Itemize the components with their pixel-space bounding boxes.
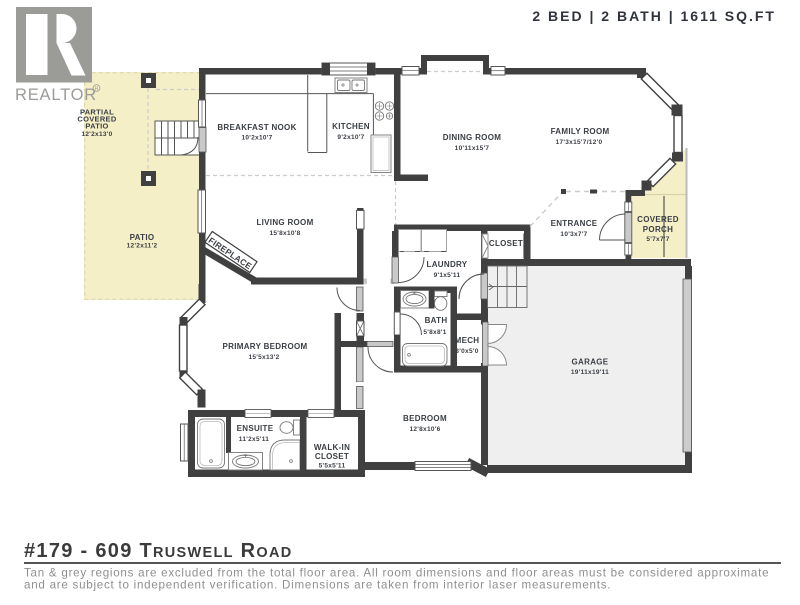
svg-text:BATH: BATH bbox=[425, 316, 448, 325]
svg-text:COVERED: COVERED bbox=[637, 215, 679, 224]
svg-text:REALTOR: REALTOR bbox=[15, 86, 97, 104]
svg-text:12'8x10'6: 12'8x10'6 bbox=[409, 426, 440, 433]
svg-text:9'1x5'11: 9'1x5'11 bbox=[434, 272, 461, 279]
svg-text:10'2x10'7: 10'2x10'7 bbox=[241, 135, 272, 142]
svg-text:GARAGE: GARAGE bbox=[572, 358, 609, 367]
svg-text:ENTRANCE: ENTRANCE bbox=[551, 219, 598, 228]
svg-text:5'5x5'11: 5'5x5'11 bbox=[319, 463, 346, 470]
svg-text:11'2x5'11: 11'2x5'11 bbox=[239, 436, 269, 443]
svg-text:CLOSET: CLOSET bbox=[489, 239, 523, 248]
svg-text:10'3x7'7: 10'3x7'7 bbox=[560, 231, 587, 238]
svg-text:17'3x15'7/12'0: 17'3x15'7/12'0 bbox=[556, 139, 603, 146]
svg-text:5'7x7'7: 5'7x7'7 bbox=[646, 236, 669, 243]
svg-text:WALK-IN: WALK-IN bbox=[314, 443, 350, 452]
svg-text:10'11x15'7: 10'11x15'7 bbox=[455, 145, 490, 152]
svg-text:19'11x19'11: 19'11x19'11 bbox=[571, 369, 609, 376]
svg-text:5'8x8'1: 5'8x8'1 bbox=[423, 329, 446, 336]
svg-text:BEDROOM: BEDROOM bbox=[403, 414, 447, 423]
svg-text:PATIO: PATIO bbox=[85, 122, 108, 131]
svg-text:MECH: MECH bbox=[455, 336, 480, 345]
svg-text:15'8x10'8: 15'8x10'8 bbox=[269, 230, 300, 237]
svg-text:R: R bbox=[95, 86, 99, 92]
svg-text:15'5x13'2: 15'5x13'2 bbox=[248, 354, 279, 361]
svg-text:12'2x13'0: 12'2x13'0 bbox=[81, 131, 112, 138]
svg-text:LAUNDRY: LAUNDRY bbox=[427, 260, 468, 269]
svg-text:and are subject to independent: and are subject to independent verificat… bbox=[24, 579, 611, 592]
svg-text:KITCHEN: KITCHEN bbox=[332, 122, 370, 131]
svg-text:ENSUITE: ENSUITE bbox=[237, 424, 274, 433]
svg-text:BREAKFAST NOOK: BREAKFAST NOOK bbox=[217, 123, 296, 132]
svg-text:PATIO: PATIO bbox=[130, 233, 155, 242]
svg-text:LIVING ROOM: LIVING ROOM bbox=[256, 218, 313, 227]
svg-text:2 BED | 2 BATH | 1611 SQ.FT: 2 BED | 2 BATH | 1611 SQ.FT bbox=[532, 8, 776, 24]
svg-text:FAMILY ROOM: FAMILY ROOM bbox=[551, 127, 610, 136]
svg-text:12'2x11'2: 12'2x11'2 bbox=[127, 243, 158, 250]
svg-text:PORCH: PORCH bbox=[643, 225, 673, 234]
svg-text:9'2x10'7: 9'2x10'7 bbox=[337, 134, 364, 141]
svg-text:3'0x5'0: 3'0x5'0 bbox=[455, 348, 478, 355]
svg-text:PRIMARY BEDROOM: PRIMARY BEDROOM bbox=[223, 342, 308, 351]
svg-text:DINING ROOM: DINING ROOM bbox=[443, 133, 501, 142]
svg-text:CLOSET: CLOSET bbox=[315, 452, 349, 461]
